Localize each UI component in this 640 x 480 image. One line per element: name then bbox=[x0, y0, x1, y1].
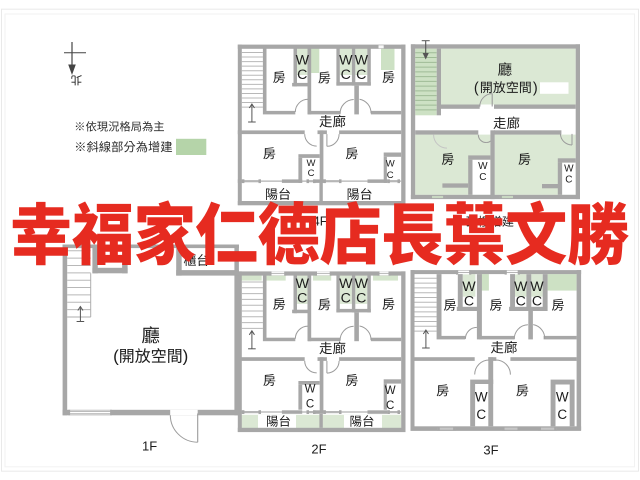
svg-text:): ) bbox=[533, 80, 538, 96]
svg-text:C: C bbox=[479, 172, 486, 183]
svg-text:W: W bbox=[556, 389, 569, 404]
svg-text:W: W bbox=[462, 279, 476, 295]
svg-text:C: C bbox=[341, 290, 351, 306]
svg-text:W: W bbox=[478, 161, 488, 172]
svg-text:C: C bbox=[464, 294, 474, 310]
svg-text:W: W bbox=[514, 279, 528, 295]
svg-text:C: C bbox=[387, 170, 394, 181]
svg-text:W: W bbox=[530, 279, 544, 295]
svg-text:1F: 1F bbox=[142, 439, 157, 454]
svg-text:C: C bbox=[386, 400, 394, 412]
svg-text:C: C bbox=[565, 175, 572, 186]
svg-text:C: C bbox=[297, 67, 307, 83]
svg-text:C: C bbox=[516, 294, 526, 310]
svg-text:W: W bbox=[385, 385, 396, 397]
svg-text:3F: 3F bbox=[483, 443, 498, 458]
svg-text:C: C bbox=[532, 294, 542, 310]
svg-text:C: C bbox=[306, 399, 314, 411]
svg-text:C: C bbox=[356, 290, 366, 306]
svg-text:W: W bbox=[339, 52, 353, 68]
svg-text:(: ( bbox=[474, 80, 479, 96]
svg-text:W: W bbox=[386, 159, 395, 170]
svg-text:W: W bbox=[564, 163, 574, 174]
svg-text:C: C bbox=[356, 67, 366, 83]
svg-text:W: W bbox=[305, 384, 316, 396]
svg-text:W: W bbox=[296, 52, 310, 68]
svg-text:W: W bbox=[475, 389, 488, 404]
svg-text:2F: 2F bbox=[311, 442, 326, 457]
svg-text:(: ( bbox=[113, 347, 119, 366]
svg-text:C: C bbox=[308, 168, 315, 179]
svg-text:C: C bbox=[476, 407, 486, 422]
svg-text:W: W bbox=[307, 158, 316, 169]
svg-text:C: C bbox=[341, 67, 351, 83]
svg-text:W: W bbox=[355, 52, 369, 68]
svg-text:C: C bbox=[557, 407, 567, 422]
svg-text:): ) bbox=[183, 347, 189, 366]
svg-text:C: C bbox=[297, 290, 307, 306]
